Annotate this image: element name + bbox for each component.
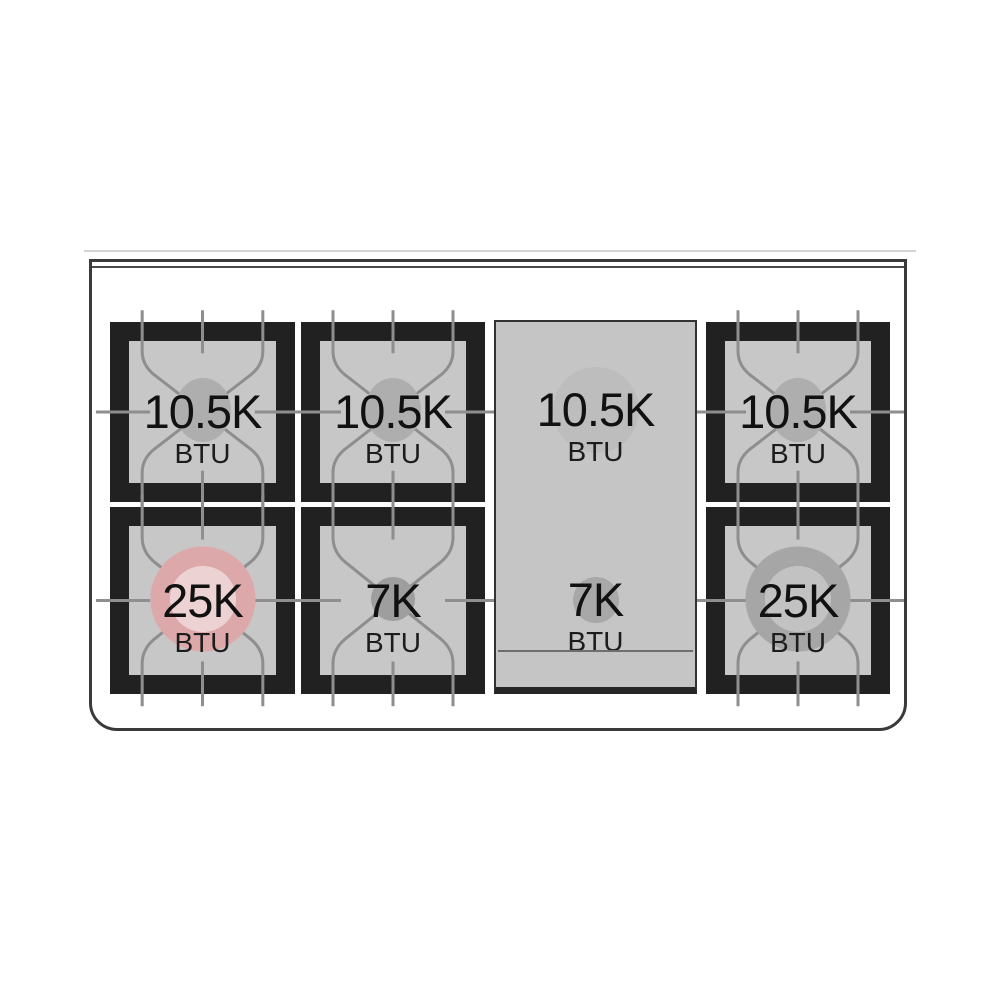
burner-btu-value: 7K — [365, 577, 421, 624]
burner-btu-unit: BTU — [365, 440, 421, 468]
burner-label: 25K BTU — [110, 507, 295, 694]
burner-btu-value: 10.5K — [739, 388, 857, 435]
burner-btu-unit: BTU — [770, 629, 826, 657]
burner-module-top-center: 10.5K BTU — [301, 322, 485, 502]
burner-btu-unit: BTU — [175, 629, 231, 657]
burner-btu-unit: BTU — [175, 440, 231, 468]
burner-btu-value: 10.5K — [496, 386, 695, 433]
burner-btu-value: 7K — [496, 576, 695, 623]
griddle-handle-line — [498, 650, 693, 652]
griddle-label-top: 10.5K BTU — [496, 386, 695, 466]
griddle-plate: 10.5K BTU 7K BTU — [494, 320, 697, 694]
burner-btu-value: 10.5K — [334, 388, 452, 435]
burner-btu-unit: BTU — [365, 629, 421, 657]
burner-module-bottom-center: 7K BTU — [301, 507, 485, 694]
griddle-label-bottom: 7K BTU — [496, 576, 695, 656]
burner-module-top-right: 10.5K BTU — [706, 322, 890, 502]
burner-module-top-left: 10.5K BTU — [110, 322, 295, 502]
burner-label: 10.5K BTU — [110, 322, 295, 502]
burner-label: 25K BTU — [706, 507, 890, 694]
backsplash-edge-line — [84, 250, 916, 252]
burner-label: 10.5K BTU — [301, 322, 485, 502]
burner-module-bottom-right: 25K BTU — [706, 507, 890, 694]
burner-label: 7K BTU — [301, 507, 485, 694]
burner-btu-value: 25K — [758, 577, 839, 624]
burner-label: 10.5K BTU — [706, 322, 890, 502]
burner-module-bottom-left: 25K BTU — [110, 507, 295, 694]
range-cooktop-diagram: 10.5K BTU 10.5K BTU — [0, 0, 1000, 1000]
burner-btu-value: 25K — [162, 577, 243, 624]
range-top-trim-line — [92, 266, 904, 268]
burner-btu-value: 10.5K — [144, 388, 262, 435]
burner-btu-unit: BTU — [770, 440, 826, 468]
burner-btu-unit: BTU — [496, 438, 695, 466]
